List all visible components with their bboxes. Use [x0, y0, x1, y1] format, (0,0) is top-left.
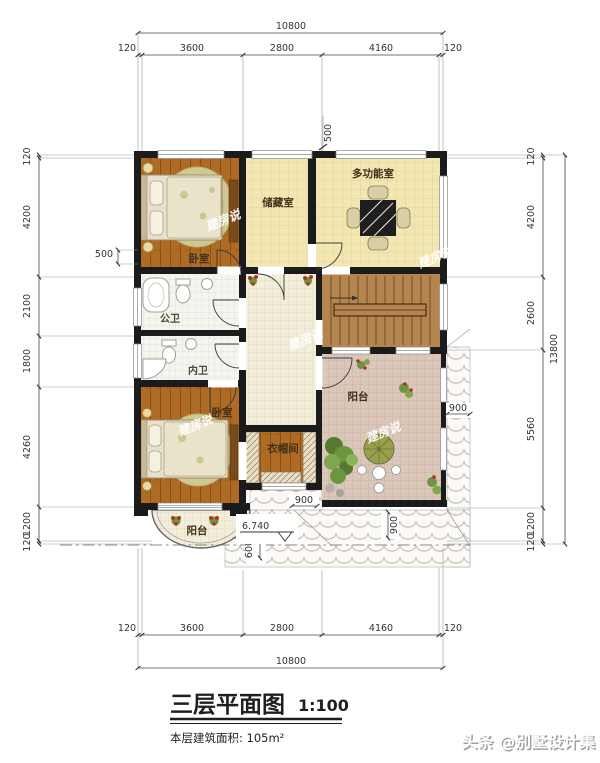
dim-label: 4200: [526, 205, 537, 229]
balcony-sliding-door: [158, 503, 222, 510]
balcony-right-label: 阳台: [348, 390, 369, 403]
dim-label: 2100: [22, 294, 33, 318]
footer-watermark-text: 头条 @别墅设计集: [461, 732, 596, 751]
floor-area-label: 本层建筑面积: 105m²: [170, 731, 284, 745]
storage-floor: [246, 158, 308, 267]
dim-label: 10800: [276, 21, 306, 32]
dim-label: 900: [295, 495, 313, 506]
toilet: [176, 285, 190, 303]
pillow: [150, 181, 163, 205]
dim-label: 120: [118, 43, 136, 54]
pillow: [149, 451, 161, 472]
dim-label: 4200: [22, 205, 33, 229]
dim-label: 4160: [369, 43, 393, 54]
dim-label: 4160: [369, 623, 393, 634]
dims-bottom: 120 3600 2800 4160 120 10800: [118, 623, 462, 668]
dim-label: 5560: [526, 417, 537, 441]
toilet-tank: [176, 279, 190, 285]
bedroom1-label: 卧室: [189, 252, 210, 265]
floor-plan-drawing: 卧室 储藏室 多功能室 公卫 内卫 卧室 衣帽间 阳台 阳台 10800 120…: [0, 0, 600, 763]
bedside-lamp: [143, 242, 153, 252]
wall-storage-multi: [308, 158, 316, 244]
wardrobe: [246, 432, 259, 483]
dining-chair: [347, 208, 360, 228]
dim-label: 120: [526, 147, 537, 165]
bedroom2-tv-cabinet: [230, 425, 238, 480]
wash-basin: [202, 279, 213, 290]
dim-label: 1200: [526, 512, 537, 536]
wall-bath-divider: [134, 330, 246, 336]
dim-label: 10800: [276, 656, 306, 667]
elevation-label: 6.740: [242, 521, 269, 532]
dims-top: 10800 120 3600 2800 4160 120: [118, 21, 462, 55]
public-bath-label: 公卫: [160, 313, 180, 325]
wardrobe: [261, 472, 301, 483]
wall-hall-stairs: [316, 274, 322, 430]
dining-chair: [368, 186, 388, 199]
balcony-table: [373, 467, 386, 480]
balcony-chair: [392, 466, 401, 475]
wall-balcony-bottom: [322, 500, 447, 507]
pillow: [150, 211, 163, 235]
bedside-lamp: [143, 482, 152, 491]
wardrobe: [303, 432, 316, 483]
multi-room-label: 多功能室: [352, 167, 394, 180]
plan-scale: 1:100: [298, 696, 349, 715]
dim-label: 500: [323, 124, 334, 142]
wash-basin: [186, 339, 197, 350]
dim-label: 120: [22, 533, 33, 551]
dim-label: 1800: [22, 349, 33, 373]
storage-label: 储藏室: [262, 196, 294, 209]
bedroom2-label: 卧室: [212, 406, 233, 419]
dim-label: 2800: [270, 43, 294, 54]
dims-left: 120 4200 2100 1800 4260 1200 120 500: [22, 147, 118, 551]
dim-label: 1200: [22, 512, 33, 536]
dim-label: 500: [95, 249, 113, 260]
dim-label: 120: [444, 43, 462, 54]
dim-label: 120: [22, 147, 33, 165]
floor-plan-page: 卧室 储藏室 多功能室 公卫 内卫 卧室 衣帽间 阳台 阳台 10800 120…: [0, 0, 600, 763]
toilet-tank: [162, 340, 176, 346]
dining-chair: [368, 237, 388, 250]
wall-row1-bottom: [134, 267, 447, 274]
dim-label: 3600: [180, 623, 204, 634]
balcony-chair: [374, 483, 384, 493]
front-balcony-label: 阳台: [187, 524, 208, 537]
dim-label: 900: [389, 516, 400, 534]
wall-left: [134, 151, 141, 510]
wall-cloak-top: [246, 425, 322, 432]
balcony-chair: [358, 466, 367, 475]
footer-watermark: 头条 @别墅设计集 头条 @别墅设计集: [461, 732, 597, 753]
dim-label: 900: [449, 403, 467, 414]
dim-label: 2800: [270, 623, 294, 634]
eave-hip-line: [447, 329, 470, 347]
dim-label: 4260: [22, 435, 33, 459]
dining-chair: [397, 208, 410, 228]
hallway-floor: [246, 274, 316, 425]
bedside-lamp: [143, 409, 152, 418]
dim-label: 2600: [526, 301, 537, 325]
dim-label: 120: [444, 623, 462, 634]
bedside-lamp: [143, 163, 153, 173]
dim-label: 13800: [549, 334, 560, 364]
dim-label: 3600: [180, 43, 204, 54]
wall-cloak-right: [316, 430, 322, 490]
cloakroom-label: 衣帽间: [267, 442, 299, 455]
pillow: [149, 425, 161, 446]
pier: [134, 507, 148, 516]
dims-right: 120 4200 2600 5560 1200 120 13800: [526, 147, 565, 551]
ensuite-bath-label: 内卫: [188, 364, 208, 377]
dim-label: 120: [526, 533, 537, 551]
plan-title: 三层平面图: [170, 692, 285, 718]
dim-label: 120: [118, 623, 136, 634]
title-block: 三层平面图 1:100 本层建筑面积: 105m²: [170, 692, 349, 745]
